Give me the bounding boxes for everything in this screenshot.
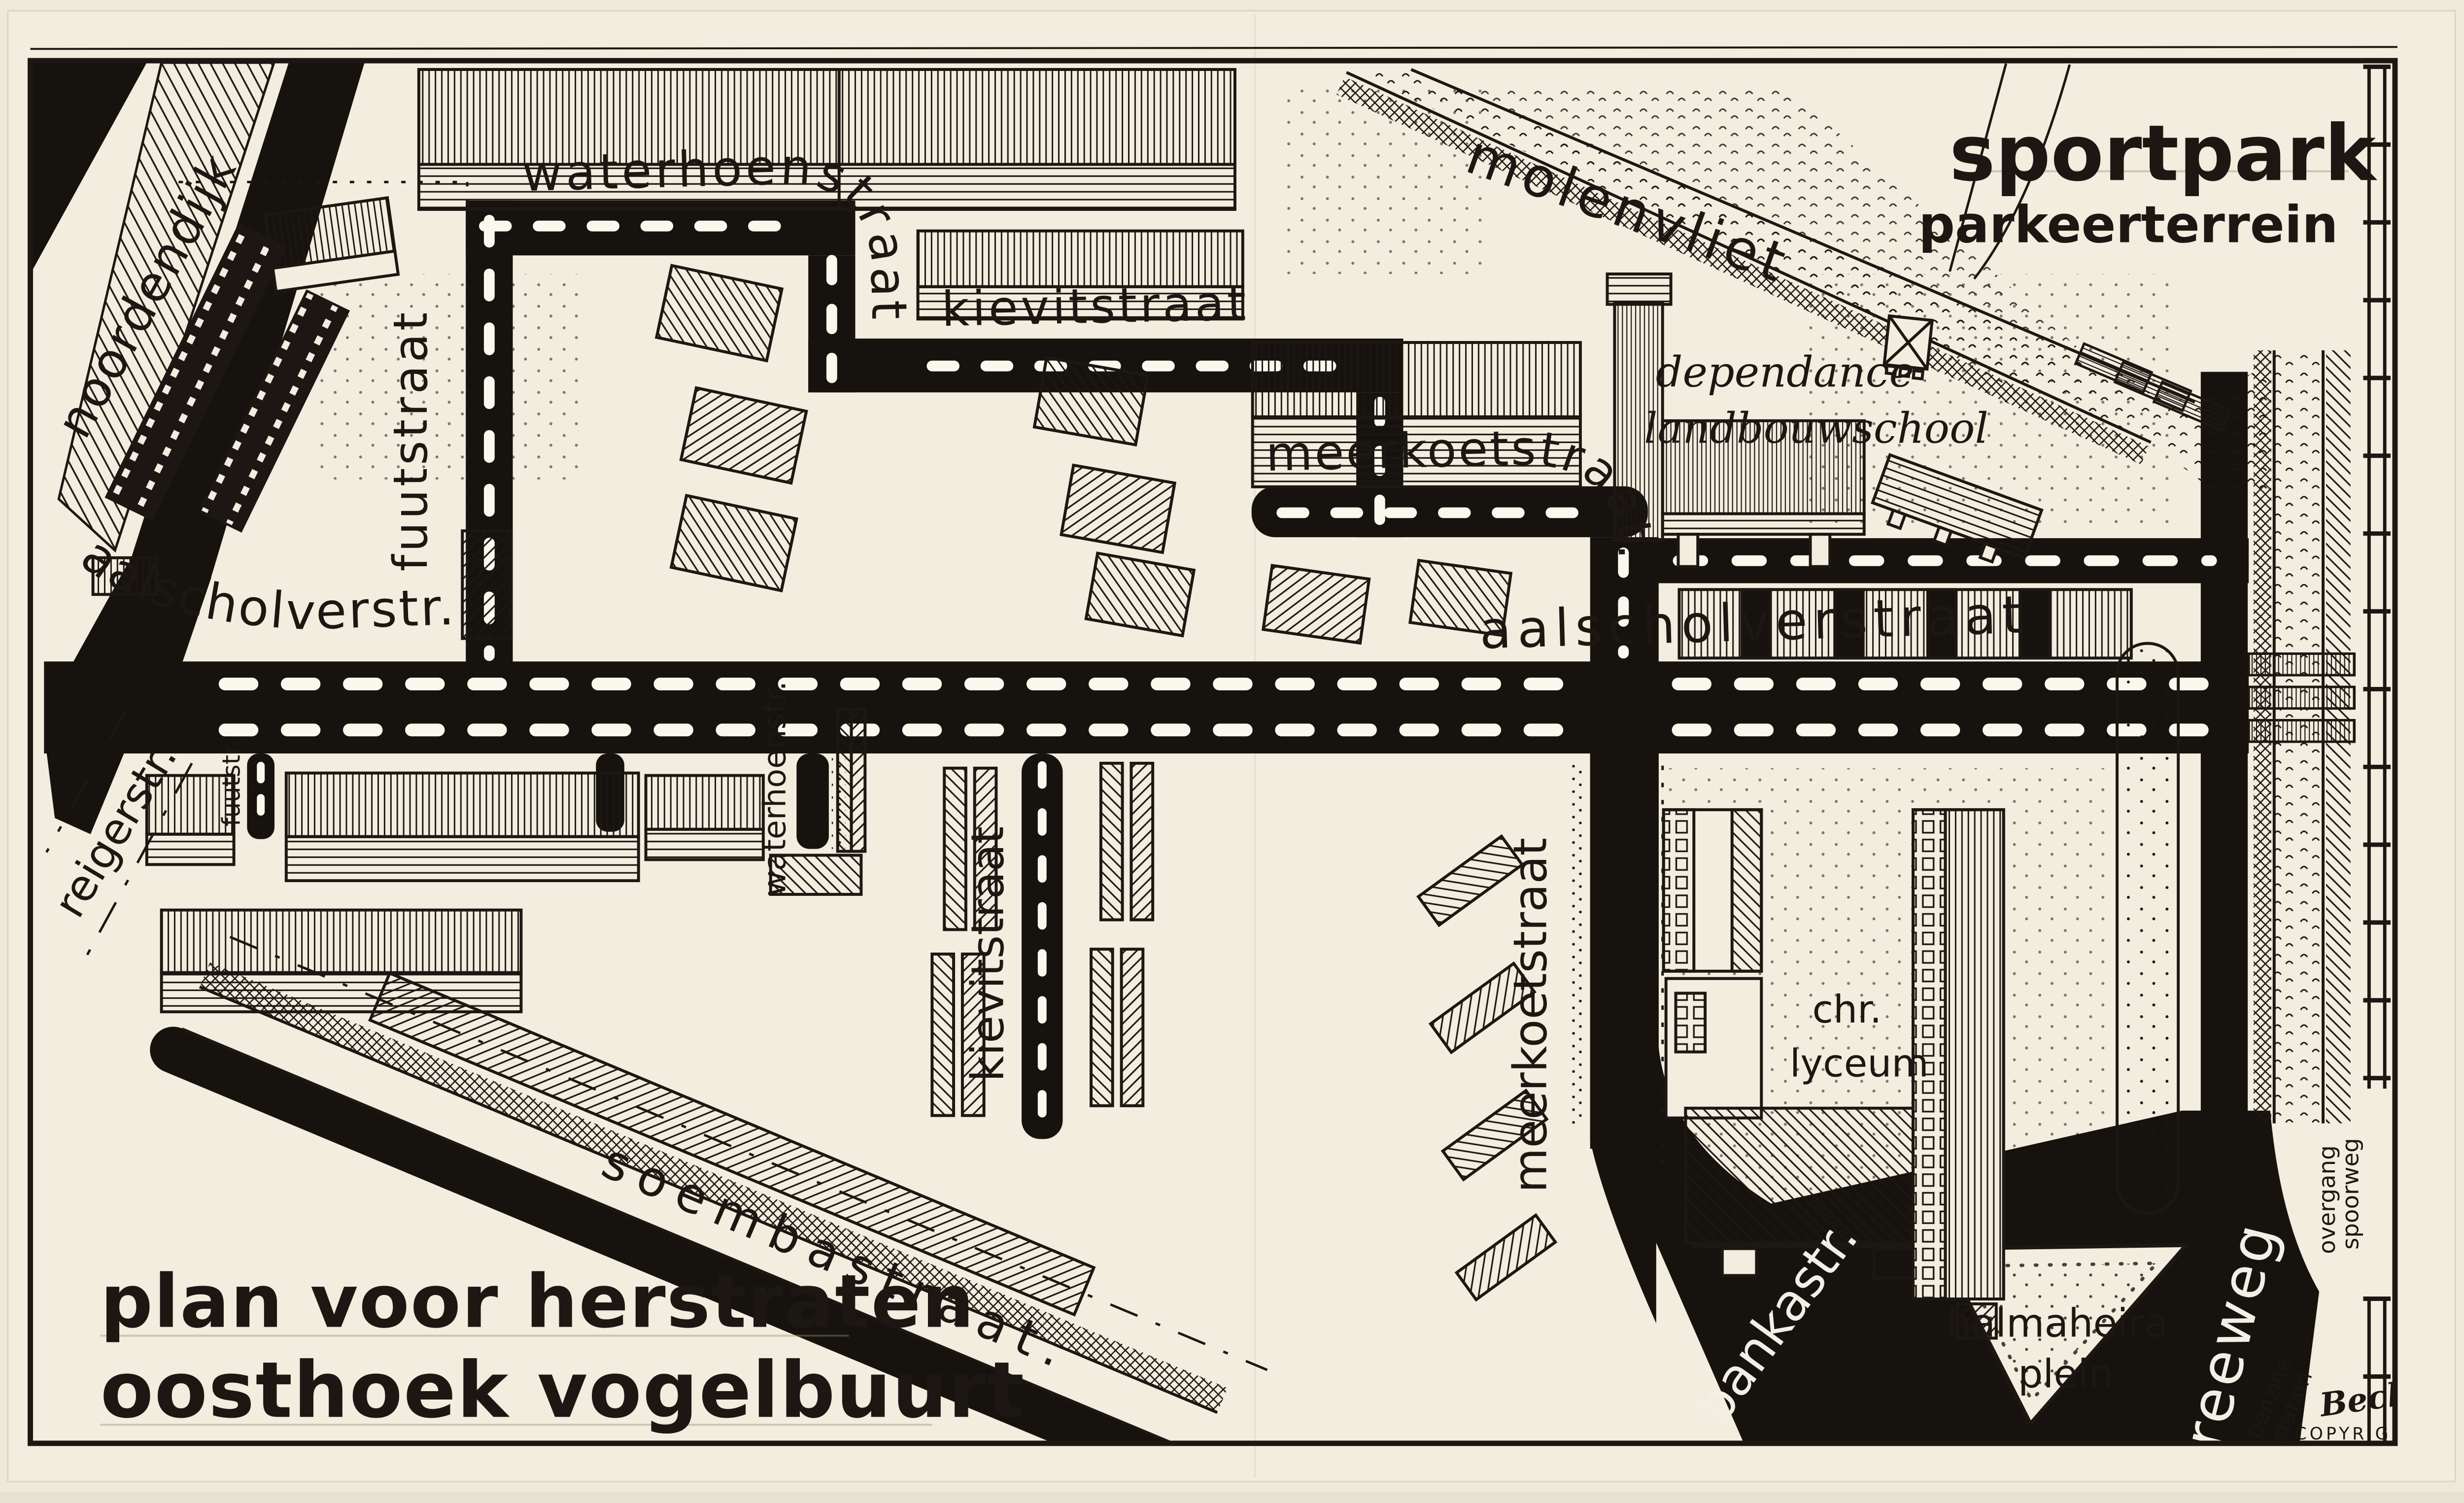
label-lyceum: lyceum bbox=[1790, 1041, 1929, 1086]
building-house bbox=[265, 198, 398, 291]
label-parkeerterrein: parkeerterrein bbox=[1918, 195, 2338, 254]
building-lyceum-west-tall bbox=[1664, 810, 1762, 971]
building-chevron bbox=[838, 710, 865, 852]
scanned-map-plan-vogelbuurt: noordendijk waterhoenstraat kievitstraat… bbox=[0, 0, 2464, 1492]
label-chr: chr. bbox=[1813, 988, 1882, 1032]
green-strip-oval bbox=[2117, 644, 2178, 1214]
building-lyceum-west-low bbox=[1666, 979, 1762, 1118]
bridge-icon bbox=[2249, 720, 2354, 742]
label-plein: plein bbox=[2018, 1351, 2114, 1397]
label-meerkoetstraat-zuid: meerkoetstraat bbox=[1504, 838, 1557, 1193]
label-fuutstraat: fuutstraat bbox=[384, 309, 438, 572]
label-dependance: dependance bbox=[1656, 348, 1914, 397]
label-kievitstraat: kievitstraat bbox=[941, 275, 1249, 337]
label-overgang: overgang bbox=[2314, 1145, 2341, 1254]
svg-text:kievitstraat: kievitstraat bbox=[941, 275, 1249, 337]
label-halmaheira: halmaheira bbox=[1947, 1300, 2168, 1346]
building-gable bbox=[1263, 565, 1369, 643]
building-row bbox=[646, 776, 763, 860]
building-gable bbox=[462, 531, 511, 638]
building-row bbox=[162, 910, 521, 1012]
label-spoorweg: spoorweg bbox=[2338, 1138, 2364, 1250]
label-waterhoenstr: waterhoenstr. bbox=[756, 681, 793, 896]
road-aalscholverstraat bbox=[44, 661, 2249, 753]
label-fuutstr: fuutstr. bbox=[217, 739, 246, 826]
map-canvas: noordendijk waterhoenstraat kievitstraat… bbox=[0, 0, 2464, 1492]
label-kievitstraat-zuid: kievitstraat bbox=[961, 826, 1014, 1082]
title-block: plan voor herstraten oosthoek vogelbuurt bbox=[101, 1260, 1026, 1435]
label-landbouwschool: landbouwschool bbox=[1644, 405, 1988, 453]
road-stub-waterhoenstr bbox=[796, 753, 829, 849]
map-title-line1: plan voor herstraten bbox=[101, 1260, 975, 1345]
stipple-strip bbox=[1569, 763, 1585, 1126]
bridge-icon bbox=[2249, 687, 2354, 709]
building-row bbox=[286, 773, 639, 881]
label-sportpark: sportpark bbox=[1950, 108, 2378, 198]
map-title-line2: oosthoek vogelbuurt bbox=[101, 1345, 1026, 1435]
bridge-icon bbox=[2249, 653, 2354, 675]
